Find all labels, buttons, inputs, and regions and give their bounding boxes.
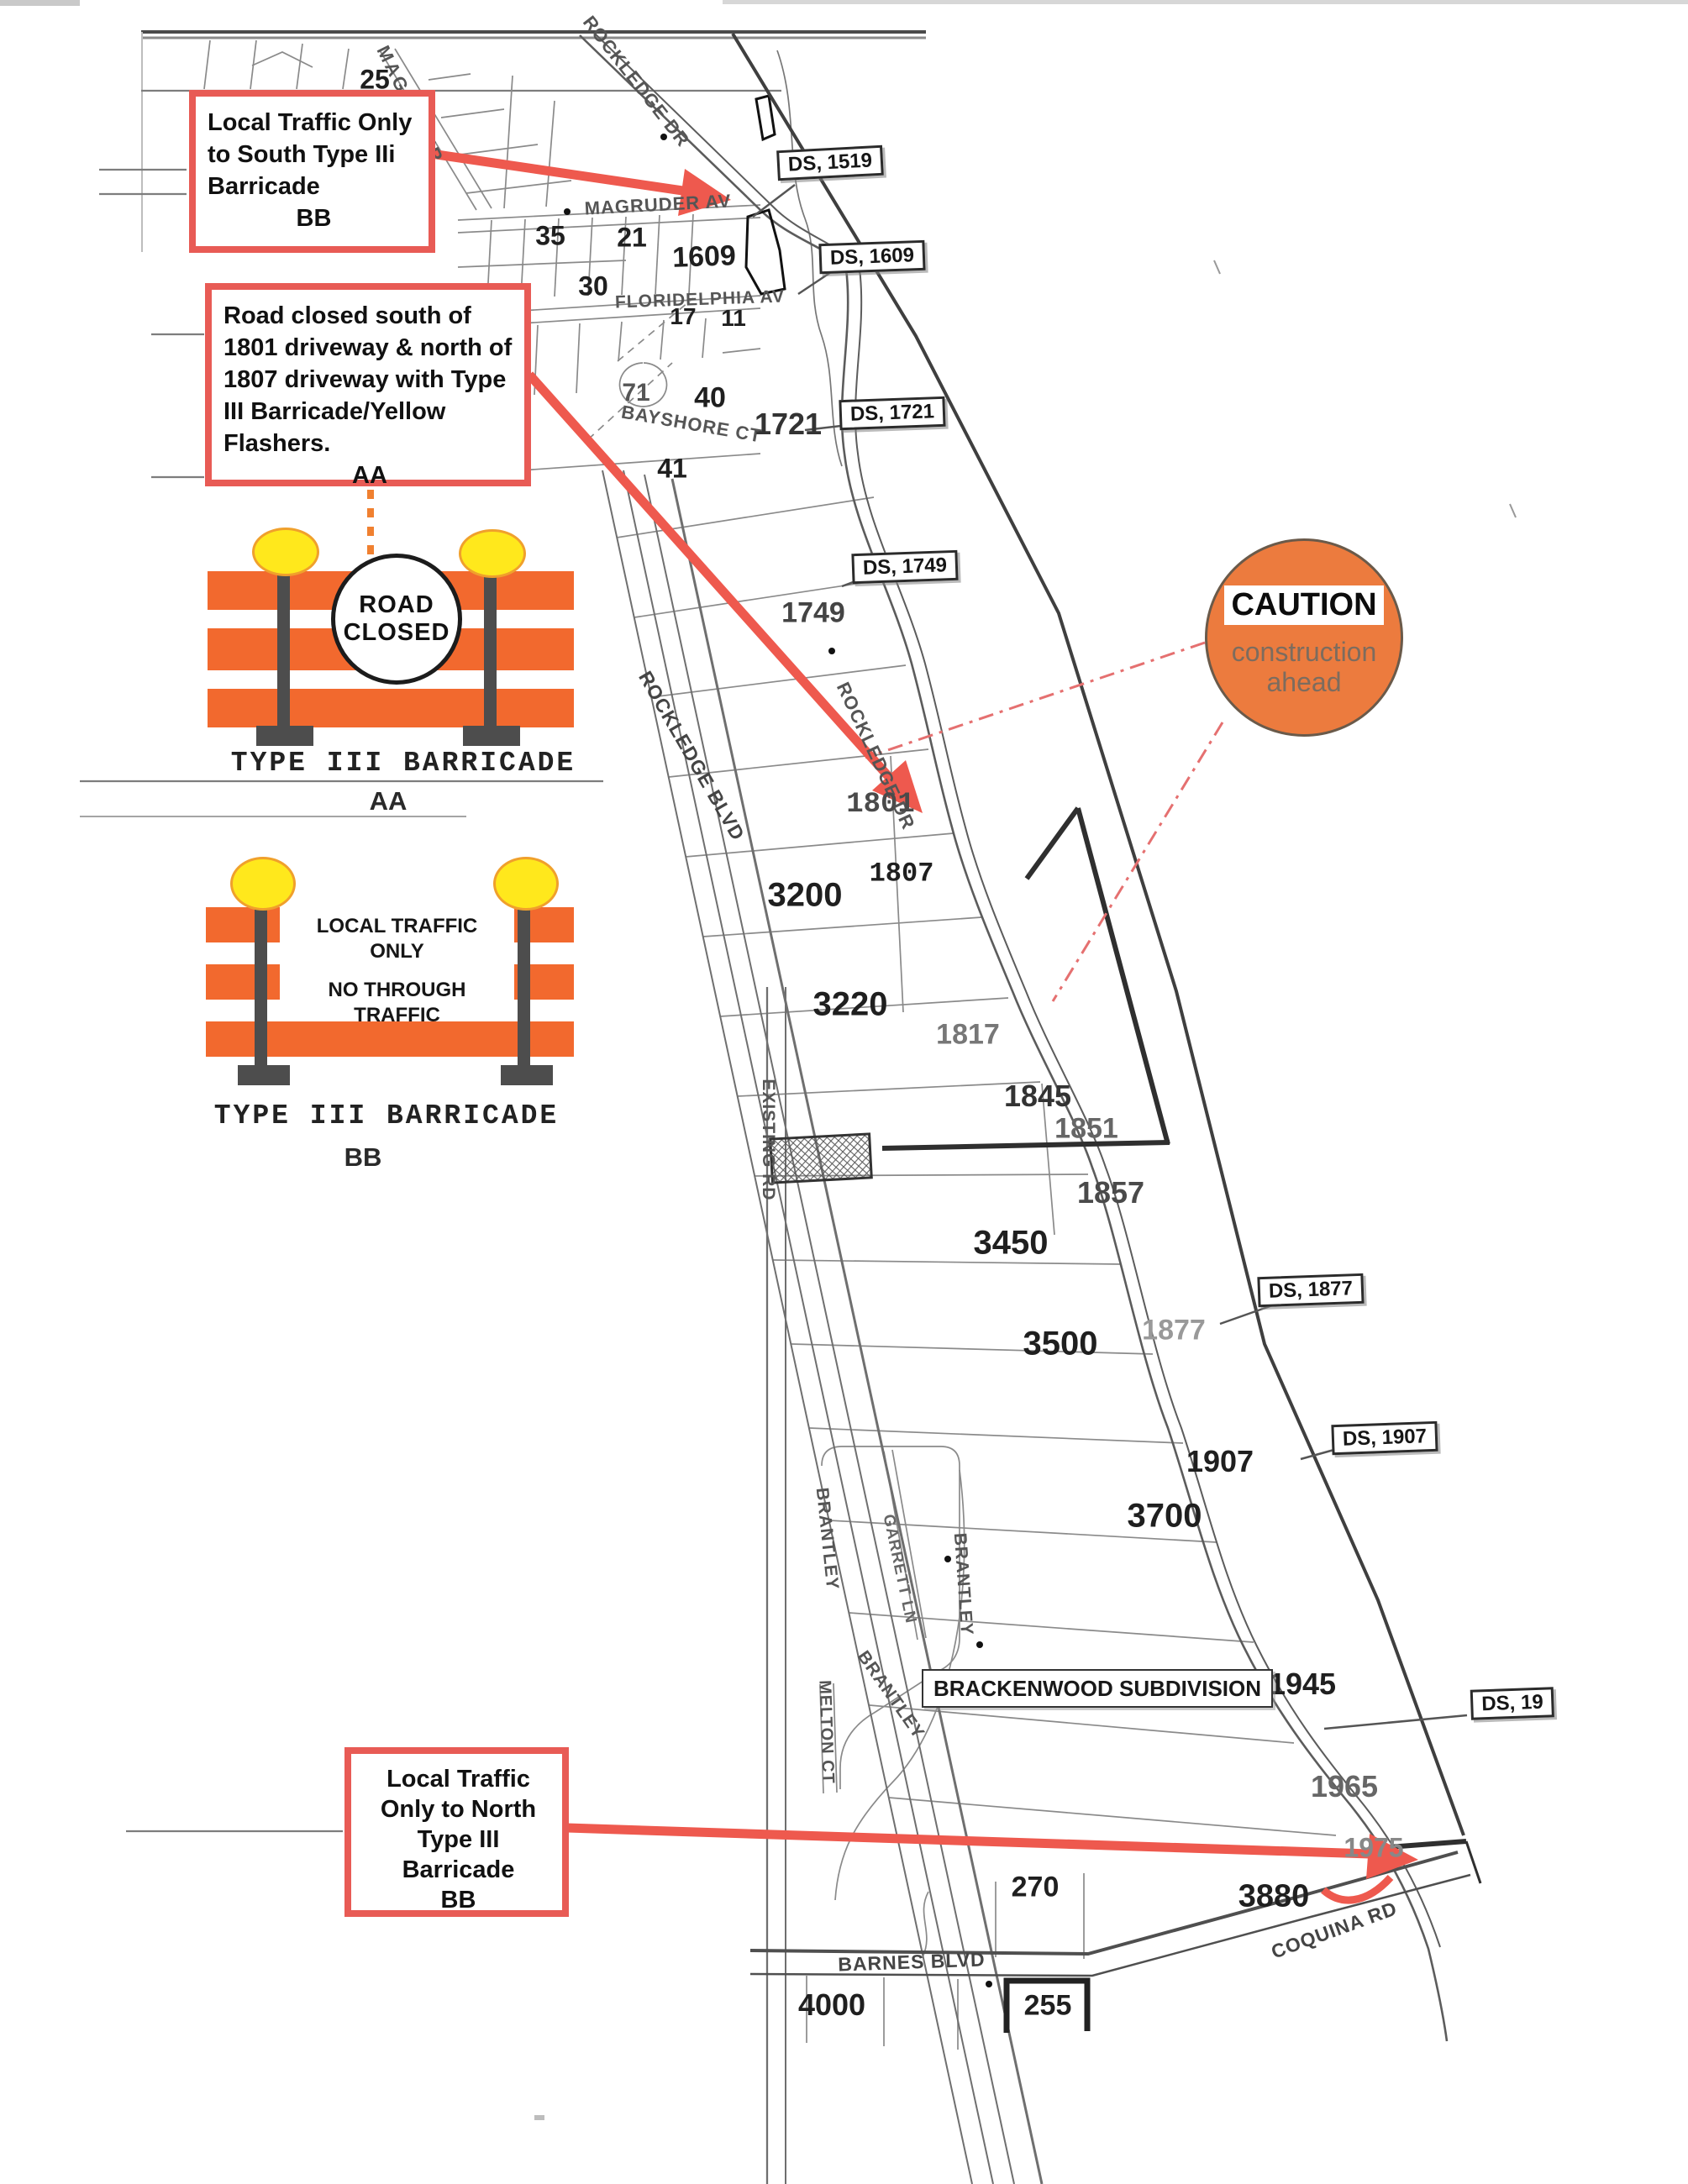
callout-tag: BB xyxy=(208,202,420,234)
sign-text: ROAD xyxy=(359,591,434,619)
sign-text: ONLY xyxy=(370,939,423,964)
barricade-foot xyxy=(256,726,313,746)
barricade-tag: AA xyxy=(370,786,408,816)
barricade-caption: TYPE III BARRICADE xyxy=(231,748,576,779)
barricade-foot xyxy=(501,1065,553,1085)
callout-text-line: III Barricade/Yellow xyxy=(223,396,516,428)
subdivision-line: SUBDIVISION xyxy=(1119,1676,1261,1701)
caution-balloon: CAUTION construction ahead xyxy=(1205,538,1403,737)
callout-text-line: 1801 driveway & north of xyxy=(223,332,516,364)
barricade-tag: BB xyxy=(344,1142,382,1173)
callout-text-line: Flashers. xyxy=(223,428,516,459)
barricade-stripe xyxy=(208,689,574,727)
callout-text-line: to South Type IIi xyxy=(208,139,420,171)
ds-leader-line xyxy=(1324,1715,1467,1729)
callout-tag: AA xyxy=(223,459,516,491)
ds-leader-line xyxy=(1301,1446,1346,1459)
caution-subtitle: construction ahead xyxy=(1232,637,1377,697)
callout-text-line: BB xyxy=(363,1885,554,1915)
sign-text: NO THROUGH xyxy=(329,978,466,1003)
caution-title: CAUTION xyxy=(1224,585,1383,625)
ds-leader-line xyxy=(1220,1304,1277,1324)
sign-text: LOCAL TRAFFIC xyxy=(317,914,478,939)
barricade-post xyxy=(518,886,530,1067)
traffic-control-plan-page: MAGRUDERROCKLEDGE DRMAGRUDER AVFLORIDELP… xyxy=(0,0,1688,2184)
callout-south-barricade: Local Traffic Only to South Type IIi Bar… xyxy=(189,90,435,253)
ds-leader-line xyxy=(842,576,869,586)
callout-text-line: Barricade xyxy=(208,171,420,202)
warning-light-icon xyxy=(459,529,526,578)
callout-text-line: Barricade xyxy=(363,1855,554,1885)
callout-text-line: Local Traffic Only xyxy=(208,107,420,139)
sign-text: TRAFFIC xyxy=(354,1003,440,1028)
callout-text-line: Only to North xyxy=(363,1794,554,1824)
barricade-foot xyxy=(238,1065,290,1085)
ds-leader-line xyxy=(798,269,836,294)
subdivision-line: BRACKENWOOD xyxy=(933,1676,1113,1701)
caution-sub-line: ahead xyxy=(1232,667,1377,697)
ds-leader-line xyxy=(753,185,795,217)
hatched-closure-area xyxy=(770,1134,872,1183)
barricade-caption: TYPE III BARRICADE xyxy=(214,1100,559,1131)
sign-text: CLOSED xyxy=(344,619,450,647)
caution-sub-line: construction xyxy=(1232,637,1377,667)
barricade-post xyxy=(255,886,267,1067)
road-closed-sign: ROAD CLOSED xyxy=(331,554,462,685)
callout-text-line: Road closed south of xyxy=(223,300,516,332)
local-traffic-panel: LOCAL TRAFFIC ONLY NO THROUGH TRAFFIC xyxy=(280,907,514,1020)
callout-north-barricade: Local Traffic Only to North Type III Bar… xyxy=(344,1747,569,1917)
callout-road-closed: Road closed south of 1801 driveway & nor… xyxy=(205,283,531,486)
warning-light-icon xyxy=(230,857,296,911)
barricade-foot xyxy=(463,726,520,746)
warning-light-icon xyxy=(252,528,319,576)
callout-text-line: Type III xyxy=(363,1824,554,1855)
callout-text-line: 1807 driveway with Type xyxy=(223,364,516,396)
ds-leader-lines xyxy=(753,185,1467,1729)
callout-text-line: Local Traffic xyxy=(363,1764,554,1794)
subdivision-label: BRACKENWOOD SUBDIVISION xyxy=(922,1669,1273,1708)
warning-light-icon xyxy=(493,857,559,911)
ds-leader-line xyxy=(805,424,855,430)
